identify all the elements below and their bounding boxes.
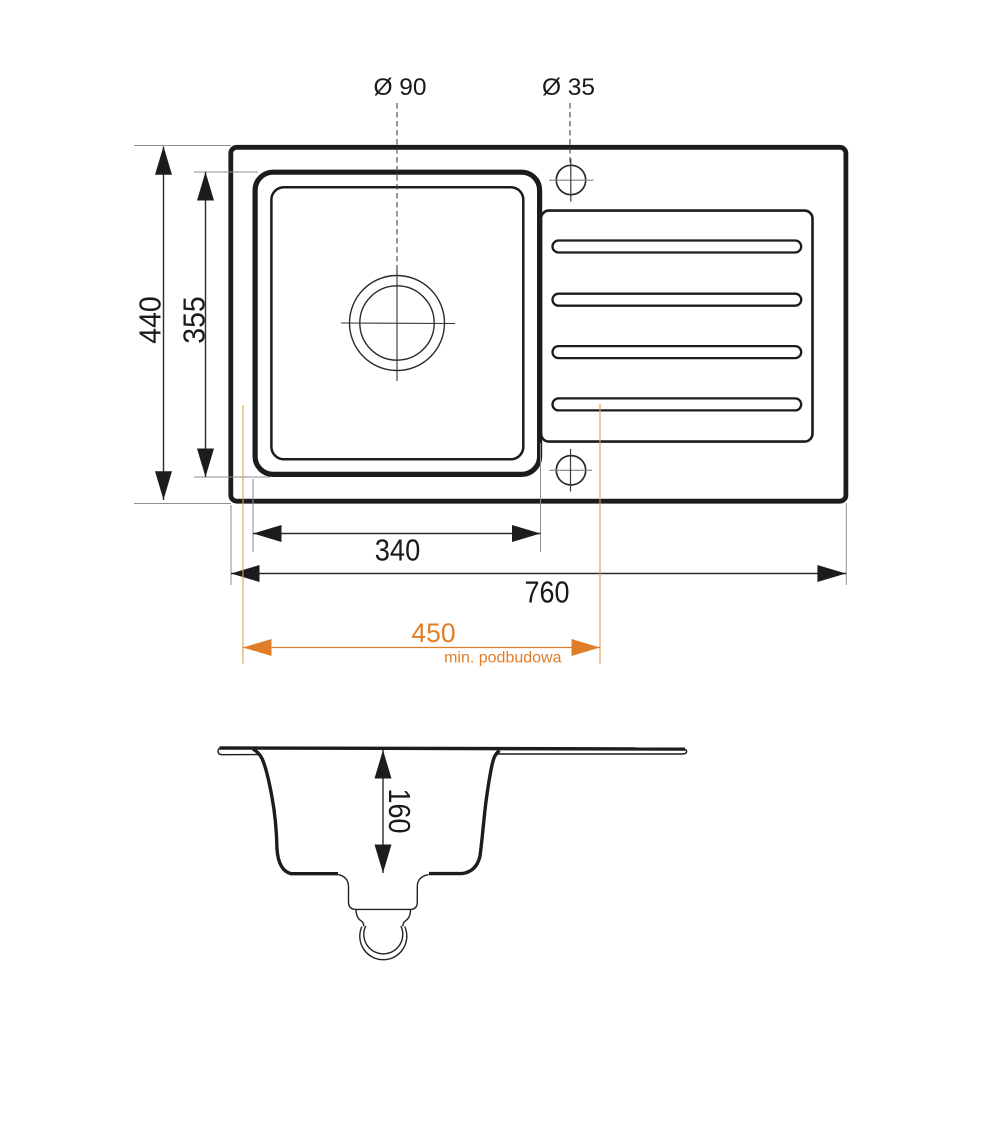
svg-text:min. podbudowa: min. podbudowa [444,650,562,667]
svg-text:450: 450 [411,618,455,648]
svg-text:340: 340 [375,533,421,568]
svg-text:760: 760 [525,576,570,610]
svg-text:355: 355 [177,296,212,344]
svg-text:160: 160 [382,789,416,834]
svg-text:Ø 90: Ø 90 [373,74,426,101]
svg-text:440: 440 [133,296,168,344]
svg-text:Ø 35: Ø 35 [542,74,595,101]
